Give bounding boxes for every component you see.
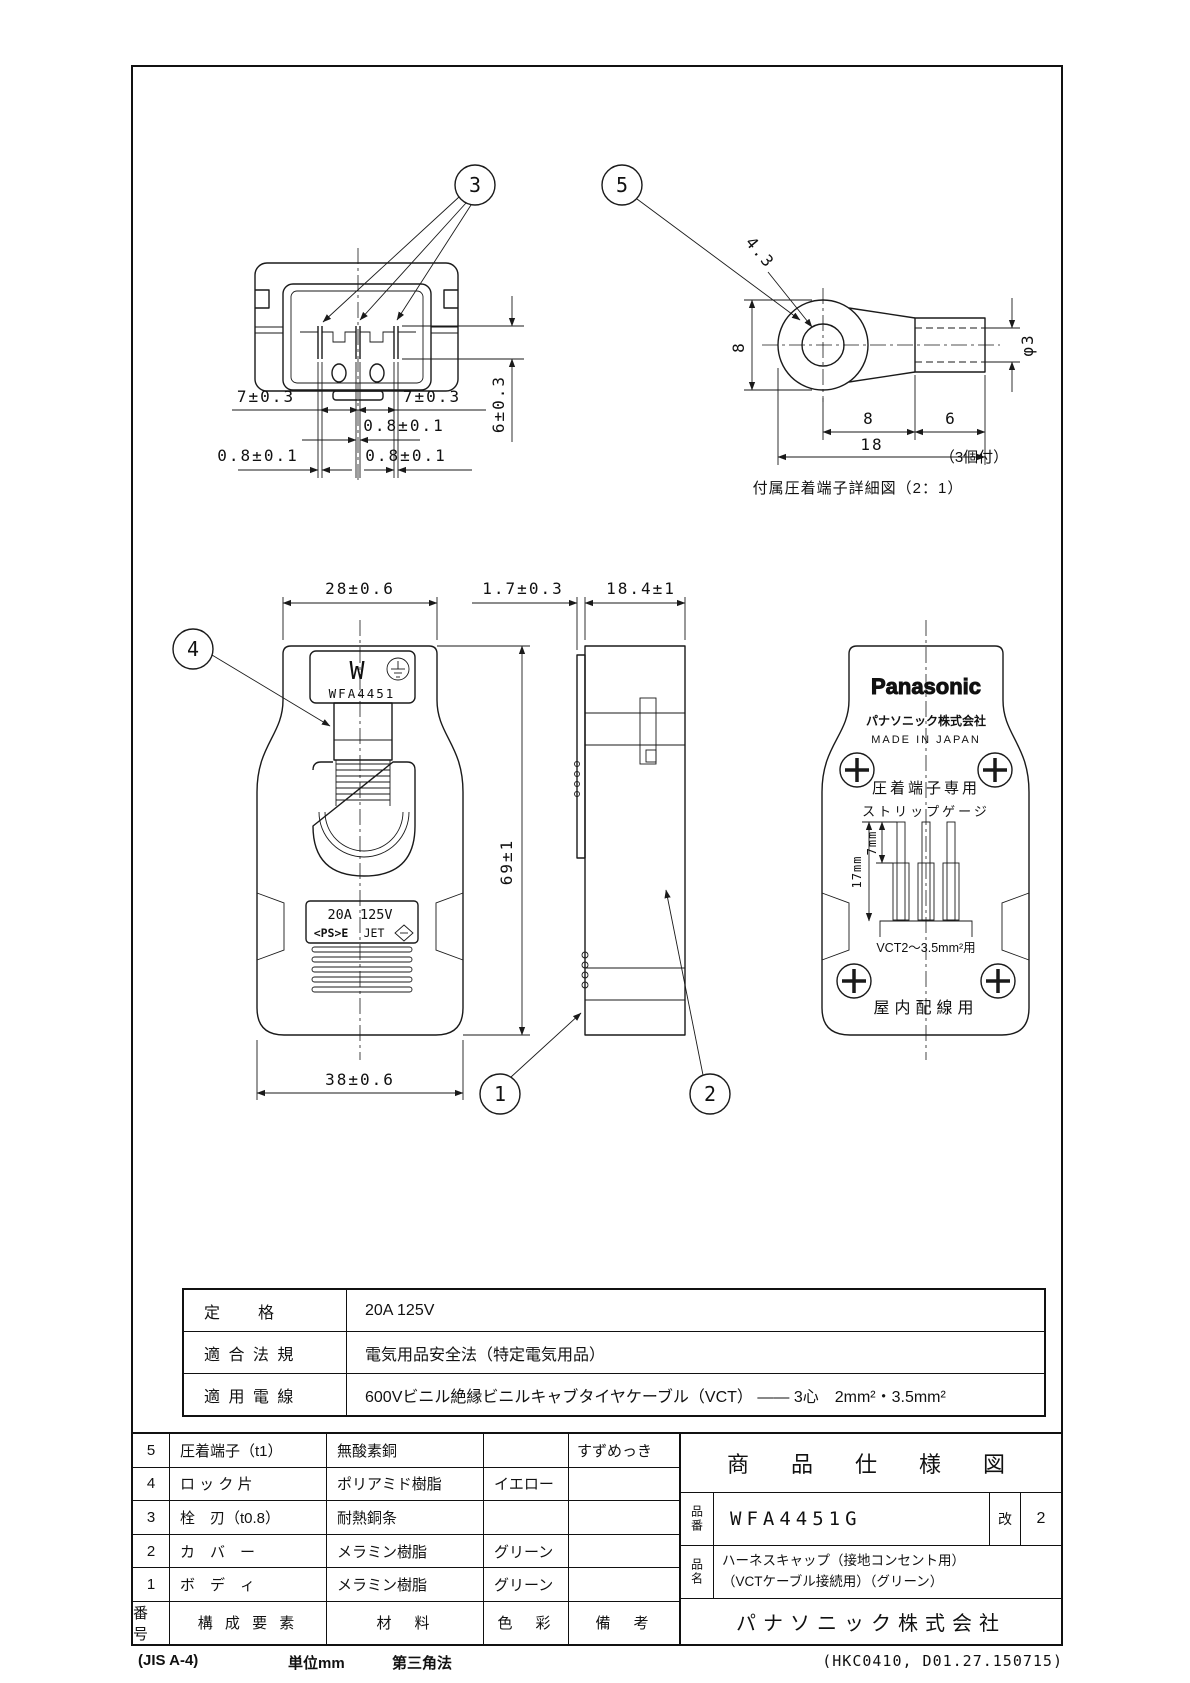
- product-name-line2: （VCTケーブル接続用）（グリーン）: [722, 1572, 1061, 1593]
- dim-blade-center: 0.8±0.1: [363, 416, 444, 435]
- phillips-screw-icon: [981, 964, 1015, 998]
- dim-blade-left: 0.8±0.1: [217, 446, 298, 465]
- cord-bushing: [336, 760, 390, 806]
- spec-value-cable: 600Vビニル絶縁ビニルキャブタイヤケーブル（VCT） ―― 3心 2mm²・3…: [347, 1374, 1044, 1415]
- phillips-screw-icon: [840, 753, 874, 787]
- parts-table: 5 圧着端子（t1） 無酸素銅 すずめっき 4 ロ ッ ク 片 ポリアミド樹脂 …: [131, 1432, 681, 1646]
- part-note: [569, 1535, 679, 1568]
- spec-value-regulation: 電気用品安全法（特定電気用品）: [347, 1332, 1044, 1373]
- company-name: パナソニック株式会社: [681, 1599, 1061, 1644]
- table-row: 2 カ バ ー メラミン樹脂 グリーン: [133, 1535, 679, 1569]
- product-name-label: 品名: [681, 1546, 714, 1598]
- part-component: ボ デ ィ: [170, 1568, 327, 1601]
- part-note: すずめっき: [569, 1434, 679, 1467]
- part-color: グリーン: [484, 1535, 569, 1568]
- terminal-caption: 付属圧着端子詳細図（2：1）: [753, 480, 964, 497]
- dim-ring-length: 8: [863, 409, 875, 428]
- pse-mark: <PS>E: [314, 926, 349, 940]
- callout-5-label: 5: [616, 173, 628, 197]
- part-color: イエロー: [484, 1468, 569, 1501]
- phillips-screw-icon: [978, 753, 1012, 787]
- part-note: [569, 1468, 679, 1501]
- spec-label-regulation: 適 合 法 規: [184, 1332, 347, 1373]
- drawing-sheet: 7±0.3 7±0.3 0.8±0.1 0.8±0.1 0.8±0.1 6±0.…: [0, 0, 1190, 1683]
- part-no: 4: [133, 1468, 170, 1501]
- strip-gauge-label: ストリップゲージ: [862, 804, 990, 819]
- drawing-canvas: 7±0.3 7±0.3 0.8±0.1 0.8±0.1 0.8±0.1 6±0.…: [0, 0, 1190, 1683]
- dim-total: 18: [860, 435, 883, 454]
- dim-barrel-dia: φ3: [1018, 333, 1037, 356]
- callout-2: 2: [666, 890, 730, 1114]
- spec-value-rating: 20A 125V: [347, 1290, 1044, 1331]
- header-color: 色 彩: [484, 1602, 569, 1644]
- title-block: 商 品 仕 様 図 品番 WFA4451G 改 2 品名 ハーネスキャップ（接地…: [679, 1432, 1063, 1646]
- unit-note: 単位mm: [288, 1652, 345, 1673]
- latch-plate: [577, 655, 585, 858]
- sheet-title: 商 品 仕 様 図: [681, 1434, 1061, 1493]
- part-color: [484, 1501, 569, 1534]
- part-material: メラミン樹脂: [327, 1568, 484, 1601]
- part-material: メラミン樹脂: [327, 1535, 484, 1568]
- part-note: [569, 1501, 679, 1534]
- part-material: 無酸素銅: [327, 1434, 484, 1467]
- part-number: WFA4451G: [714, 1493, 989, 1545]
- header-note: 備 考: [569, 1602, 679, 1644]
- top-view: 7±0.3 7±0.3 0.8±0.1 0.8±0.1 0.8±0.1 6±0.…: [217, 165, 524, 482]
- dim-width-bottom: 38±0.6: [325, 1070, 395, 1089]
- part-component: 圧着端子（t1）: [170, 1434, 327, 1467]
- gauge-dim-17: 17mm: [850, 856, 864, 889]
- back-view: Panasonic パナソニック株式会社 MADE IN JAPAN 圧着端子専…: [822, 620, 1029, 1060]
- table-row: 適 合 法 規 電気用品安全法（特定電気用品）: [184, 1332, 1044, 1374]
- product-name-row: 品名 ハーネスキャップ（接地コンセント用） （VCTケーブル接続用）（グリーン）: [681, 1546, 1061, 1599]
- cable-clamp: [313, 762, 415, 876]
- callout-4-label: 4: [187, 637, 199, 661]
- revision-label: 改: [989, 1493, 1020, 1545]
- terminal-qty-note: （3個付）: [940, 449, 1008, 466]
- made-in-japan: MADE IN JAPAN: [871, 734, 981, 746]
- dim-width-top: 28±0.6: [325, 579, 395, 598]
- spec-label-cable: 適 用 電 線: [184, 1374, 347, 1415]
- terminal-detail: 8 4.3 φ3 8 6 18 5: [602, 165, 1037, 497]
- part-color: [484, 1434, 569, 1467]
- table-row: 3 栓 刃（t0.8） 耐熱銅条: [133, 1501, 679, 1535]
- callout-1-label: 1: [494, 1082, 506, 1106]
- table-row: 5 圧着端子（t1） 無酸素銅 すずめっき: [133, 1434, 679, 1468]
- dim-pitch-left: 7±0.3: [237, 387, 295, 406]
- part-no: 2: [133, 1535, 170, 1568]
- dim-blade-length: 6±0.3: [489, 375, 508, 433]
- product-name-line1: ハーネスキャップ（接地コンセント用）: [722, 1551, 1061, 1572]
- header-material: 材 料: [327, 1602, 484, 1644]
- dim-barrel-length: 6: [945, 409, 957, 428]
- spec-label-rating: 定 格: [184, 1290, 347, 1331]
- parts-header-row: 番号 構 成 要 素 材 料 色 彩 備 考: [133, 1602, 679, 1644]
- product-name: ハーネスキャップ（接地コンセント用） （VCTケーブル接続用）（グリーン）: [714, 1546, 1061, 1598]
- part-number-row: 品番 WFA4451G 改 2: [681, 1493, 1061, 1546]
- part-color: グリーン: [484, 1568, 569, 1601]
- dim-latch: 1.7±0.3: [482, 579, 563, 598]
- gauge-dim-7: 7mm: [865, 831, 879, 856]
- terminal-only-note: 圧着端子専用: [872, 780, 980, 797]
- part-material: ポリアミド樹脂: [327, 1468, 484, 1501]
- phillips-screw-icon: [837, 964, 871, 998]
- mount-hole-left: [332, 364, 346, 382]
- earth-ground-icon: [387, 658, 409, 680]
- table-row: 1 ボ デ ィ メラミン樹脂 グリーン: [133, 1568, 679, 1602]
- lock-piece: [334, 703, 392, 760]
- jet-mark: JET: [364, 926, 385, 940]
- revision-value: 2: [1020, 1493, 1061, 1545]
- dim-pitch-right: 7±0.3: [403, 387, 461, 406]
- part-no: 5: [133, 1434, 170, 1467]
- dim-blade-right: 0.8±0.1: [365, 446, 446, 465]
- callout-3: 3: [323, 165, 495, 322]
- marking-w: W: [349, 656, 365, 685]
- callout-4: 4: [173, 629, 330, 726]
- jet-diamond-icon: [395, 925, 413, 941]
- callout-2-label: 2: [704, 1082, 716, 1106]
- part-component: カ バ ー: [170, 1535, 327, 1568]
- marking-rating: 20A 125V: [327, 907, 392, 923]
- part-no: 3: [133, 1501, 170, 1534]
- dim-hole: 4.3: [742, 233, 779, 272]
- marking-model: WFA4451: [329, 686, 396, 701]
- indoor-wiring-note: 屋内配線用: [873, 999, 978, 1017]
- part-component: ロ ッ ク 片: [170, 1468, 327, 1501]
- header-no: 番号: [133, 1602, 170, 1644]
- document-number: (HKC0410, D01.27.150715): [822, 1652, 1063, 1670]
- callout-5: 5: [602, 165, 800, 320]
- projection-note: 第三角法: [392, 1652, 452, 1673]
- brand-logo: Panasonic: [871, 674, 981, 699]
- table-row: 適 用 電 線 600Vビニル絶縁ビニルキャブタイヤケーブル（VCT） ―― 3…: [184, 1374, 1044, 1415]
- dim-depth: 18.4±1: [606, 579, 676, 598]
- dim-height: 69±1: [497, 839, 516, 886]
- callout-3-label: 3: [469, 173, 481, 197]
- mount-hole-right: [370, 364, 384, 382]
- callout-1: 1: [480, 1013, 581, 1114]
- part-component: 栓 刃（t0.8）: [170, 1501, 327, 1534]
- table-row: 定 格 20A 125V: [184, 1290, 1044, 1332]
- grill-lines: [312, 947, 412, 992]
- front-view: W WFA4451: [173, 579, 530, 1100]
- dim-ring-width: 8: [729, 341, 748, 353]
- part-no: 1: [133, 1568, 170, 1601]
- table-row: 4 ロ ッ ク 片 ポリアミド樹脂 イエロー: [133, 1468, 679, 1502]
- part-note: [569, 1568, 679, 1601]
- back-company: パナソニック株式会社: [866, 713, 986, 728]
- header-component: 構 成 要 素: [170, 1602, 327, 1644]
- part-number-label: 品番: [681, 1493, 714, 1545]
- paper-size-note: (JIS A-4): [138, 1652, 198, 1669]
- part-material: 耐熱銅条: [327, 1501, 484, 1534]
- cable-size-note: VCT2〜3.5mm²用: [876, 941, 975, 955]
- spec-table: 定 格 20A 125V 適 合 法 規 電気用品安全法（特定電気用品） 適 用…: [182, 1288, 1046, 1417]
